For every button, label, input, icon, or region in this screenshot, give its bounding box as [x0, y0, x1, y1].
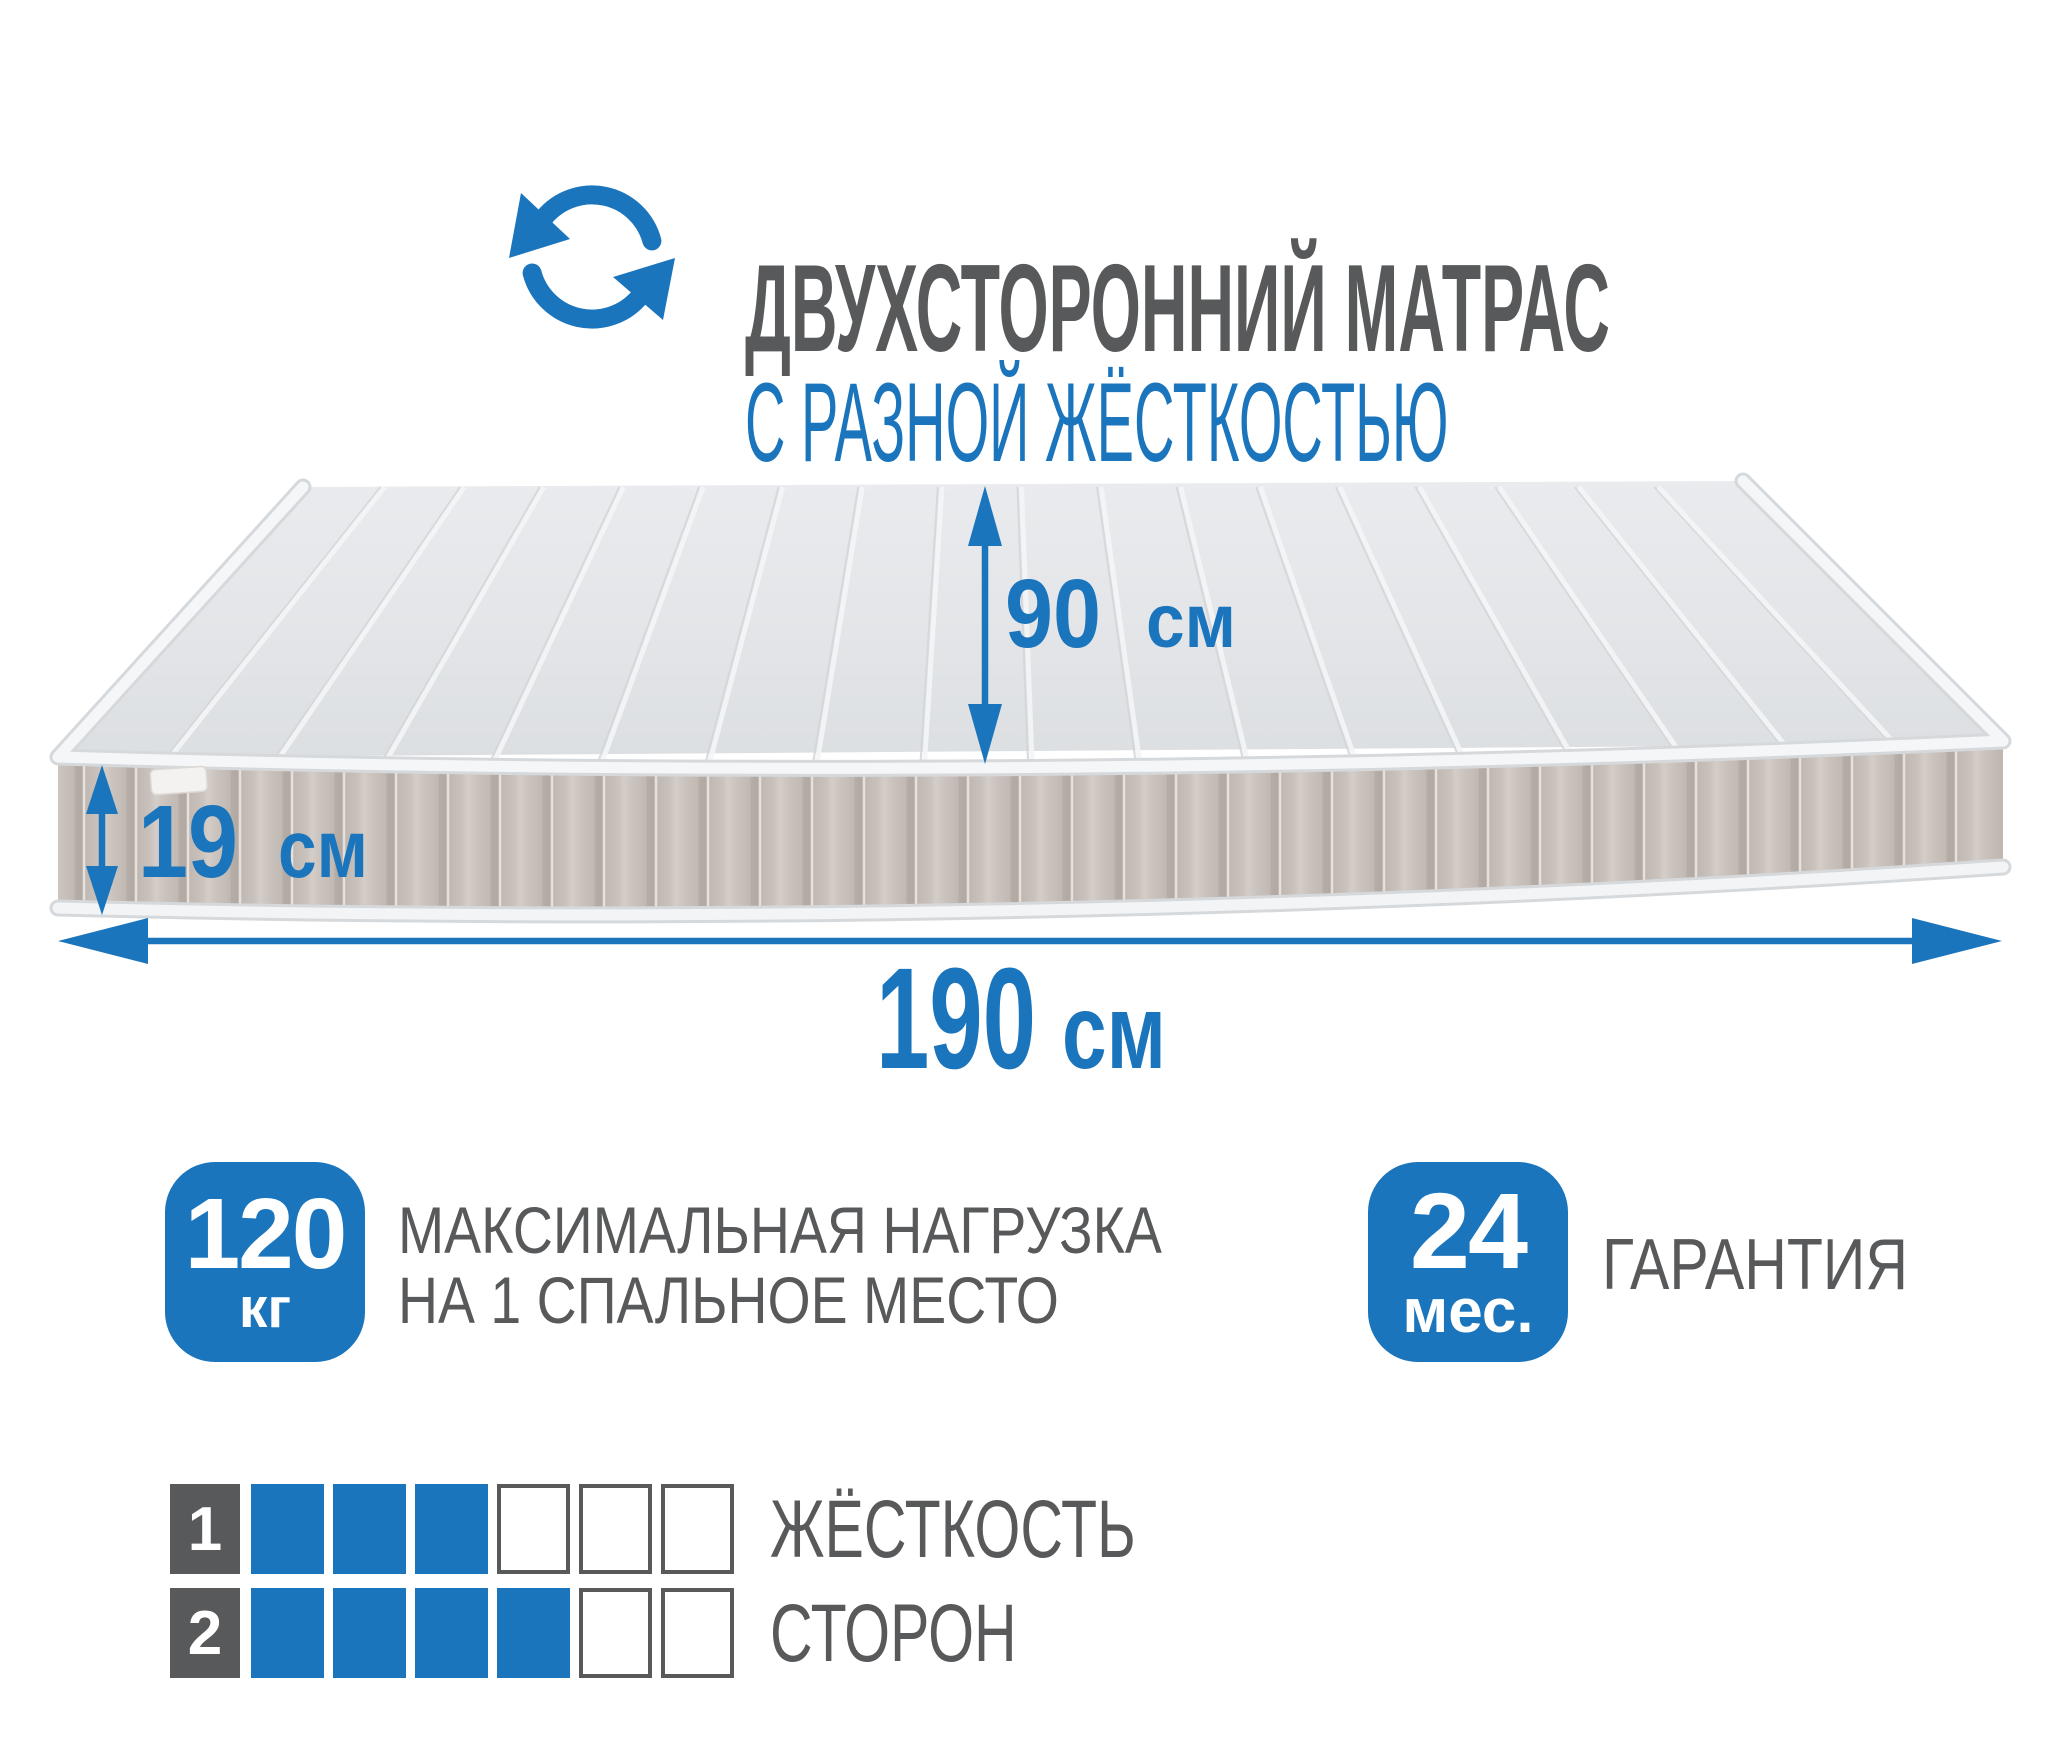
hardness-cell: [497, 1588, 570, 1678]
hardness-row-number: 2: [170, 1588, 240, 1678]
warranty-badge: 24 мес.: [1368, 1162, 1568, 1362]
length-arrowhead-right: [1912, 918, 2002, 964]
hardness-cell: [579, 1588, 652, 1678]
warranty-value: 24: [1410, 1181, 1526, 1280]
hardness-cell: [579, 1484, 652, 1574]
height-value: 19: [138, 784, 238, 899]
max-load-label-line1: МАКСИМАЛЬНАЯ НАГРУЗКА: [398, 1195, 1162, 1265]
max-load-value: 120: [185, 1188, 346, 1280]
height-unit: см: [278, 804, 368, 895]
hardness-cell: [333, 1588, 406, 1678]
hardness-cell: [415, 1588, 488, 1678]
warranty-unit: мес.: [1402, 1281, 1533, 1343]
hardness-cell: [661, 1484, 734, 1574]
hardness-row-cells: [251, 1588, 734, 1678]
hardness-cell: [415, 1484, 488, 1574]
hardness-label-line1: ЖЁСТКОСТЬ: [770, 1489, 1136, 1571]
hardness-cell: [661, 1588, 734, 1678]
max-load-label-line2: НА 1 СПАЛЬНОЕ МЕСТО: [398, 1265, 1162, 1335]
hardness-label-line2: СТОРОН: [770, 1593, 1017, 1675]
max-load-unit: кг: [239, 1280, 291, 1337]
hardness-cell: [497, 1484, 570, 1574]
length-dimension: 190 см: [58, 918, 2002, 1099]
length-value: 190: [876, 938, 1036, 1099]
hardness-cell: [333, 1484, 406, 1574]
hardness-row: 1: [170, 1484, 734, 1574]
max-load-label: МАКСИМАЛЬНАЯ НАГРУЗКА НА 1 СПАЛЬНОЕ МЕСТ…: [398, 1195, 1162, 1335]
hardness-row-cells: [251, 1484, 734, 1574]
length-unit: см: [1062, 973, 1166, 1091]
hardness-row: 2: [170, 1588, 734, 1678]
mattress-infographic: ДВУХСТОРОННИЙ МАТРАС С РАЗНОЙ ЖЁСТКОСТЬЮ: [0, 0, 2048, 1757]
max-load-badge: 120 кг: [165, 1162, 365, 1362]
length-arrowhead-left: [58, 918, 148, 964]
hardness-cell: [251, 1588, 324, 1678]
warranty-label: ГАРАНТИЯ: [1602, 1229, 1908, 1301]
width-unit: см: [1146, 579, 1236, 664]
width-value: 90: [1005, 559, 1101, 668]
hardness-row-number: 1: [170, 1484, 240, 1574]
hardness-scale: 1 2: [170, 1484, 734, 1678]
hardness-cell: [251, 1484, 324, 1574]
